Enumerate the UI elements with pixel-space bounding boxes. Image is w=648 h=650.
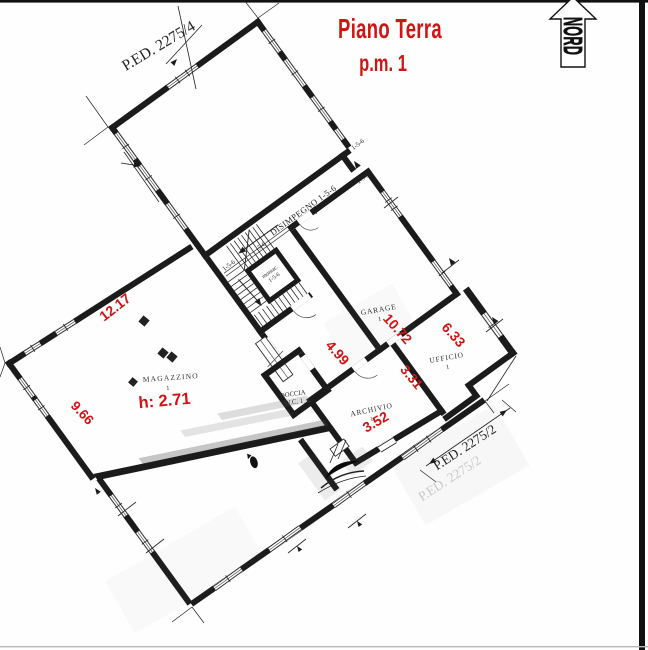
svg-text:Piano Terra: Piano Terra [338, 14, 442, 45]
svg-text:p.m. 1: p.m. 1 [359, 51, 407, 76]
svg-text:1: 1 [166, 385, 170, 392]
svg-text:NORD: NORD [558, 17, 586, 55]
